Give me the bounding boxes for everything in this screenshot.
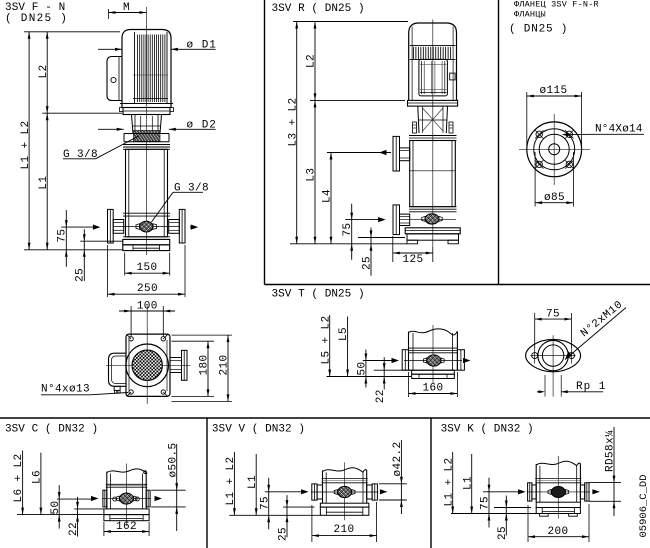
svg-text:RD58x¼: RD58x¼ <box>604 430 616 472</box>
svg-text:75: 75 <box>342 222 354 236</box>
svg-text:ø115: ø115 <box>539 85 567 97</box>
svg-text:L2: L2 <box>306 54 318 68</box>
svg-text:75: 75 <box>56 229 68 243</box>
svg-text:L1 + L2: L1 + L2 <box>225 456 237 505</box>
svg-text:22: 22 <box>375 389 387 403</box>
svg-text:160: 160 <box>422 383 443 395</box>
svg-text:L1: L1 <box>38 176 50 190</box>
svg-text:150: 150 <box>136 262 157 274</box>
svg-text:100: 100 <box>137 301 158 313</box>
svg-text:L3 + L2: L3 + L2 <box>287 97 299 146</box>
svg-text:25: 25 <box>497 526 509 540</box>
svg-text:180: 180 <box>198 354 210 375</box>
svg-text:25: 25 <box>362 256 374 270</box>
svg-text:75: 75 <box>259 496 271 510</box>
svg-text:3SV T ( DN25 ): 3SV T ( DN25 ) <box>272 289 365 301</box>
svg-text:22: 22 <box>68 522 80 536</box>
svg-text:3SV K ( DN32 ): 3SV K ( DN32 ) <box>441 424 534 436</box>
svg-text:( DN25 ): ( DN25 ) <box>5 13 68 25</box>
svg-text:ø85: ø85 <box>544 192 565 204</box>
svg-text:3SV R ( DN25 ): 3SV R ( DN25 ) <box>272 3 365 15</box>
svg-text:L4: L4 <box>322 189 334 203</box>
svg-text:3SV C ( DN32 ): 3SV C ( DN32 ) <box>5 424 98 436</box>
svg-text:L6 + L2: L6 + L2 <box>13 453 25 502</box>
svg-text:25: 25 <box>74 268 86 282</box>
svg-text:200: 200 <box>547 526 568 538</box>
svg-text:L1: L1 <box>462 476 474 490</box>
svg-text:ø D1: ø D1 <box>187 40 217 52</box>
svg-text:L5: L5 <box>338 327 350 341</box>
svg-text:3SV V ( DN32 ): 3SV V ( DN32 ) <box>212 424 305 436</box>
svg-text:( DN25 ): ( DN25 ) <box>509 24 568 36</box>
svg-text:50: 50 <box>357 361 369 375</box>
svg-text:L1 + L2: L1 + L2 <box>443 457 455 506</box>
svg-text:ø D2: ø D2 <box>187 120 217 132</box>
svg-text:162: 162 <box>116 521 137 533</box>
svg-text:ФЛАНЕЦ 3SV F-N-R: ФЛАНЕЦ 3SV F-N-R <box>514 0 599 10</box>
svg-text:25: 25 <box>278 527 290 541</box>
svg-text:ø42.2: ø42.2 <box>392 441 404 476</box>
svg-text:L5 + L2: L5 + L2 <box>320 315 332 364</box>
svg-text:N°4xø13: N°4xø13 <box>41 384 90 396</box>
svg-text:L2: L2 <box>38 64 50 78</box>
svg-text:N°4Xø14: N°4Xø14 <box>595 124 643 136</box>
svg-text:L1 + L2: L1 + L2 <box>20 120 32 169</box>
svg-text:ФЛАНЦЫ: ФЛАНЦЫ <box>514 10 546 20</box>
svg-text:210: 210 <box>218 354 230 375</box>
svg-text:05906_C_DD: 05906_C_DD <box>638 474 650 537</box>
svg-text:Rp 1: Rp 1 <box>576 381 606 393</box>
svg-text:50: 50 <box>50 500 62 514</box>
svg-text:ø50.5: ø50.5 <box>167 442 179 477</box>
svg-text:75: 75 <box>480 496 492 510</box>
svg-text:L6: L6 <box>32 470 44 484</box>
svg-text:210: 210 <box>333 524 354 536</box>
svg-text:125: 125 <box>402 254 423 266</box>
svg-text:L3: L3 <box>306 168 318 182</box>
svg-text:75: 75 <box>546 309 560 321</box>
svg-text:250: 250 <box>137 283 158 295</box>
svg-text:M: M <box>123 2 130 14</box>
svg-text:L1: L1 <box>247 475 259 489</box>
